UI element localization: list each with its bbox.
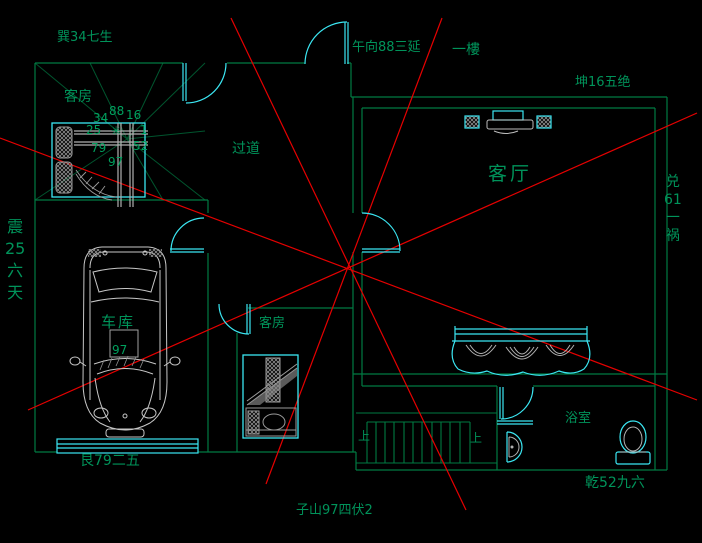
label-sitting-direction: 子山97四伏2 bbox=[296, 504, 373, 517]
bedroom1-door-icon bbox=[183, 63, 226, 103]
tv-cabinet-icon bbox=[487, 111, 533, 134]
car-icon bbox=[70, 247, 180, 437]
toilet-icon bbox=[616, 421, 650, 464]
label-zhen-char: 震 bbox=[7, 219, 23, 235]
star-grid-center-mark: ✳ bbox=[111, 125, 121, 137]
garage-roller-door-icon bbox=[57, 439, 198, 453]
speaker-left-icon bbox=[465, 116, 479, 128]
label-stairs-up-right: 上 bbox=[470, 432, 482, 444]
label-xun-sector: 巽34七生 bbox=[57, 31, 113, 44]
label-dui-char: 一 bbox=[666, 211, 680, 225]
bedroom2-door-icon bbox=[219, 304, 250, 334]
label-dui-char: 61 bbox=[664, 193, 682, 207]
star-grid-cell: 97 bbox=[108, 156, 123, 168]
label-room-hallway: 过道 bbox=[232, 142, 260, 156]
label-qian-sector: 乾52九六 bbox=[585, 476, 645, 490]
living-room-door-icon bbox=[362, 213, 400, 252]
label-room-bathroom: 浴室 bbox=[565, 412, 591, 425]
star-grid-cell: 16 bbox=[126, 109, 141, 121]
label-zhen-char: 天 bbox=[7, 285, 23, 301]
label-floor-name: 一樓 bbox=[452, 43, 480, 57]
star-grid-cell: 1 bbox=[140, 124, 148, 136]
label-room-living-room: 客厅 bbox=[488, 165, 532, 184]
speaker-right-icon bbox=[537, 116, 551, 128]
label-dui-char: 祸 bbox=[666, 229, 680, 243]
label-room-guestroom-2: 客房 bbox=[259, 317, 285, 330]
label-zhen-char: 25 bbox=[5, 241, 25, 257]
label-zhen-sector: 震 25 六 天 bbox=[5, 219, 25, 301]
label-facing-direction: 午向88三延 bbox=[352, 41, 421, 54]
bathroom-door-icon bbox=[497, 387, 533, 424]
star-grid-cell: 79 bbox=[91, 142, 106, 154]
garage-hall-door-icon bbox=[170, 218, 204, 252]
star-number-garage: 97 bbox=[112, 344, 127, 356]
label-zhen-char: 六 bbox=[7, 263, 23, 279]
label-dui-sector: 兑 61 一 祸 bbox=[664, 175, 682, 243]
label-stairs-up-left: 上 bbox=[358, 430, 370, 442]
star-grid-cell: 25 bbox=[86, 124, 101, 136]
label-room-guestroom-1: 客房 bbox=[64, 90, 92, 104]
bed-single-icon bbox=[243, 355, 298, 438]
star-grid-cell: 52 bbox=[133, 140, 148, 152]
cad-floor-plan: 巽34七生 午向88三延 一樓 坤16五绝 艮79二五 子山97四伏2 乾52九… bbox=[0, 0, 702, 543]
washbasin-icon bbox=[507, 432, 522, 462]
label-dui-char: 兑 bbox=[666, 175, 680, 189]
label-kun-sector: 坤16五绝 bbox=[575, 76, 631, 89]
star-grid-cell: 88 bbox=[109, 105, 124, 117]
front-door-icon bbox=[305, 22, 348, 64]
label-gen-sector: 艮79二五 bbox=[80, 454, 140, 468]
label-room-garage: 车库 bbox=[101, 315, 135, 330]
